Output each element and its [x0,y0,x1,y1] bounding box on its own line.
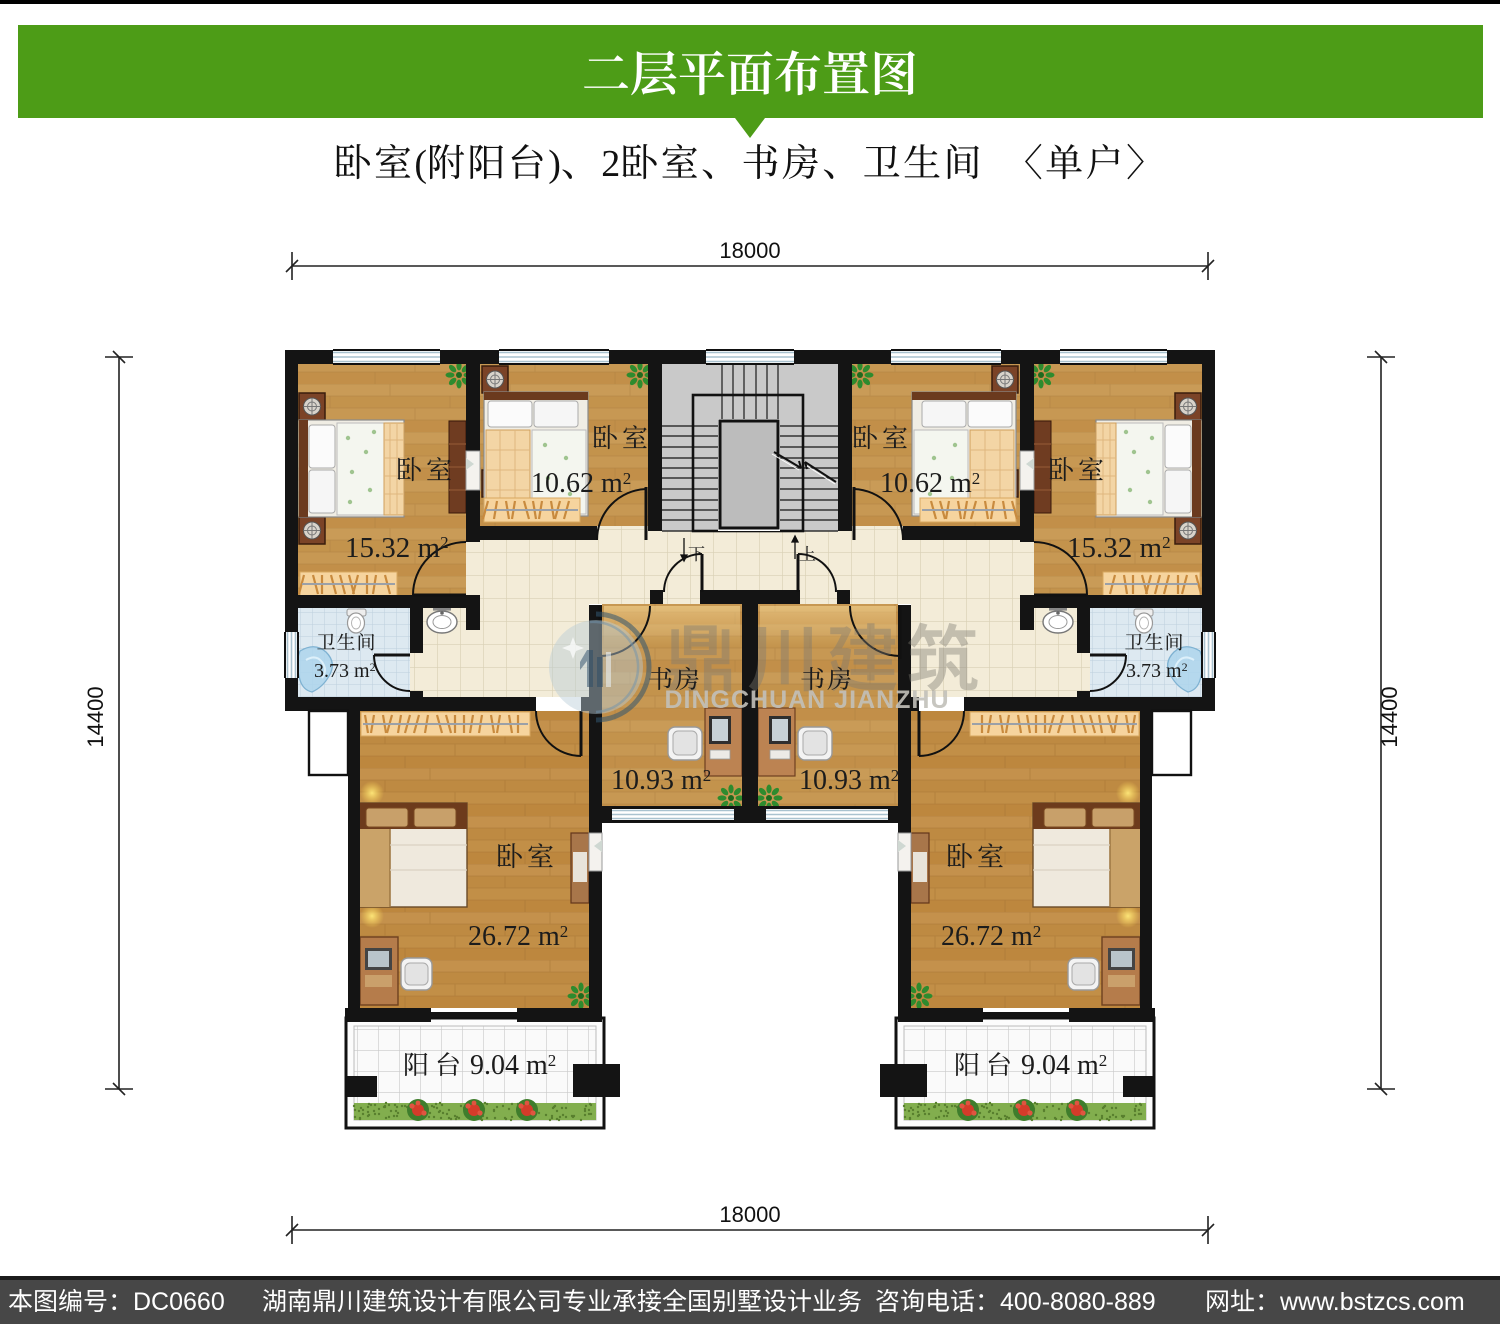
svg-text:DC0660: DC0660 [133,1288,225,1316]
svg-text:10.62 m2: 10.62 m2 [531,468,631,499]
svg-text:3.73 m2: 3.73 m2 [1126,660,1188,682]
svg-text:9.04 m2: 9.04 m2 [1021,1050,1107,1081]
svg-text:10.62 m2: 10.62 m2 [880,468,980,499]
svg-text:26.72 m2: 26.72 m2 [468,921,568,952]
svg-text:18000: 18000 [719,238,780,263]
svg-text:DINGCHUAN JIANZHU: DINGCHUAN JIANZHU [664,686,949,714]
svg-text:10.93 m2: 10.93 m2 [799,765,899,796]
svg-text:): ) [548,143,561,185]
svg-text:14400: 14400 [1377,686,1402,747]
svg-text:www.bstzcs.com: www.bstzcs.com [1279,1288,1465,1316]
svg-text:10.93 m2: 10.93 m2 [611,765,711,796]
svg-text:14400: 14400 [83,686,108,747]
svg-text:15.32 m2: 15.32 m2 [1067,532,1171,564]
svg-text:(: ( [414,143,427,185]
svg-text:9.04 m2: 9.04 m2 [470,1050,556,1081]
svg-text:400-8080-889: 400-8080-889 [1000,1288,1156,1316]
svg-text:26.72 m2: 26.72 m2 [941,921,1041,952]
svg-text:15.32 m2: 15.32 m2 [345,532,449,564]
svg-text:18000: 18000 [719,1202,780,1227]
svg-text:3.73 m2: 3.73 m2 [314,660,376,682]
svg-text:2: 2 [601,143,620,185]
